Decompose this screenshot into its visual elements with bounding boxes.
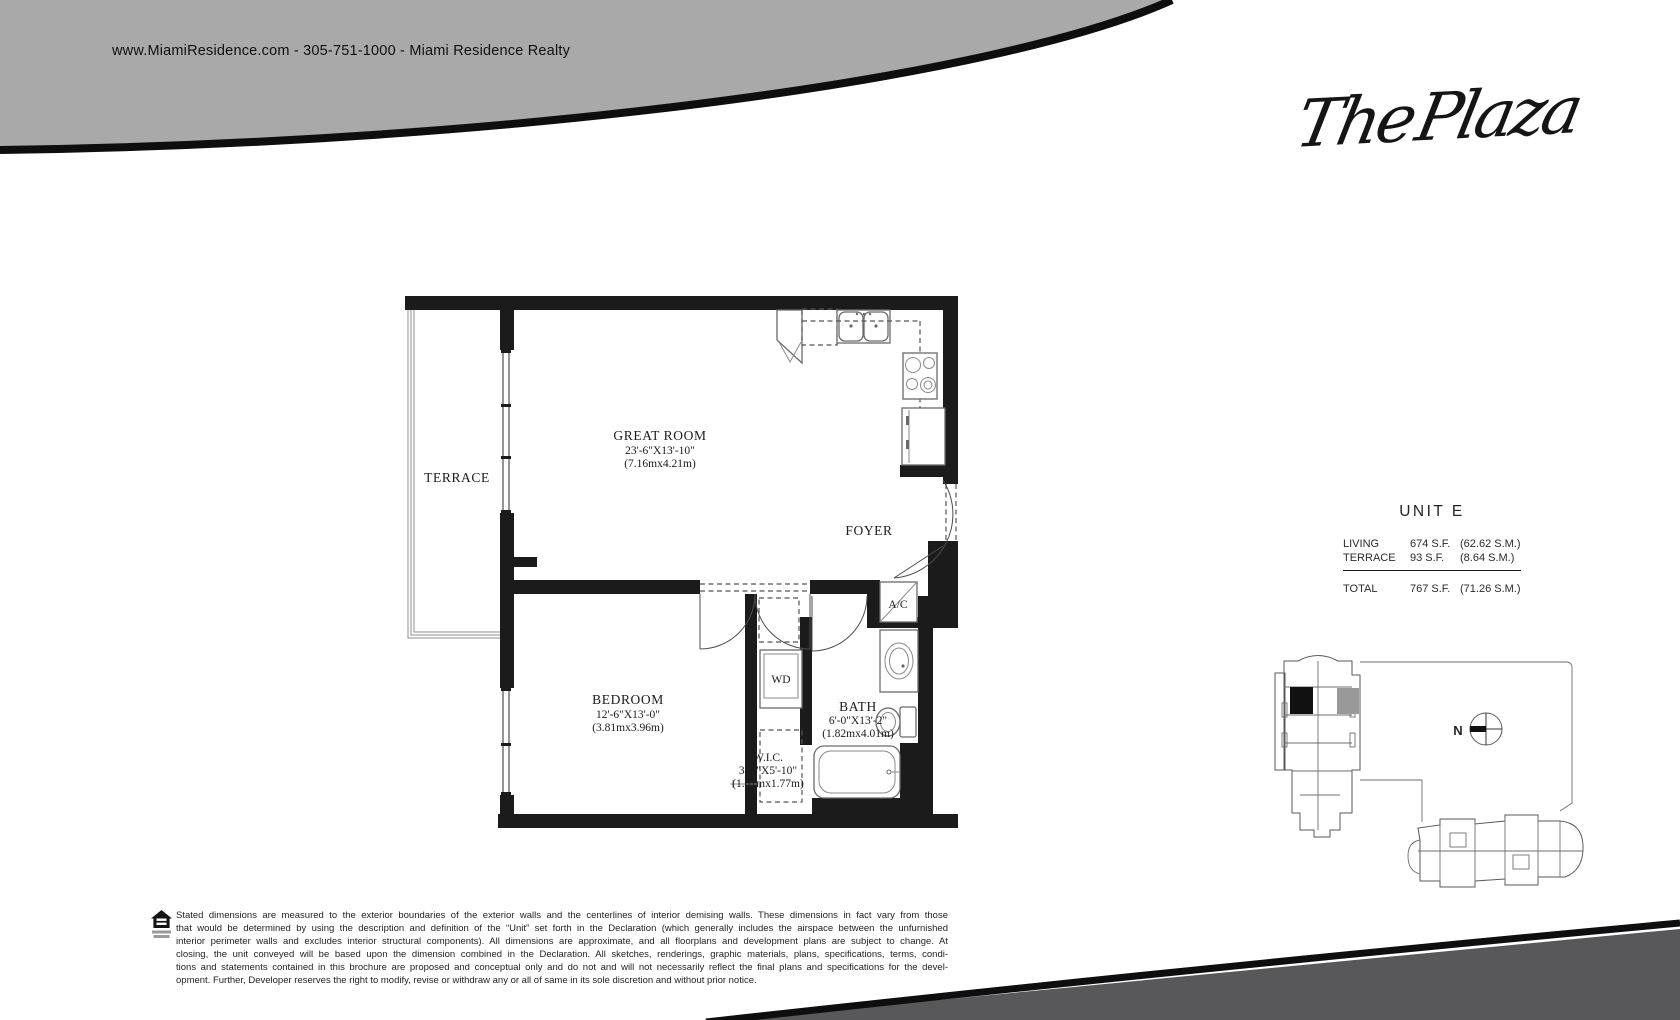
the-plaza-logo: The Plaza: [1275, 70, 1608, 235]
row-label: TERRACE: [1343, 551, 1410, 565]
compass-icon: [1470, 713, 1502, 745]
bedroom-dims: 12'-6"X13'-0": [596, 709, 660, 721]
top-gray-band: [0, 0, 1172, 147]
keyplan-boundary: [1360, 662, 1572, 822]
bedroom-label: BEDROOM: [592, 692, 664, 707]
upper-cabinet-dashed: [802, 309, 837, 345]
great-room-label: GREAT ROOM: [613, 428, 706, 443]
floor-plan: TERRACE GREAT ROOM 23'-6"X13'-10" (7.16m…: [400, 288, 965, 833]
wic-dims: 3'-4"X5'-10": [739, 765, 797, 777]
washer-dryer: [759, 598, 802, 708]
bath-dims: 6'-0"X13'-2": [829, 715, 887, 727]
unit-title: UNIT E: [1343, 503, 1521, 521]
bath-door: [812, 596, 867, 651]
stove-icon: [903, 353, 937, 399]
row-label: LIVING: [1343, 537, 1410, 551]
window-great-room: [501, 350, 511, 513]
wic-label: W.I.C.: [753, 752, 783, 764]
keyplan-tower-south: [1408, 815, 1583, 887]
table-row-living: LIVING 674 S.F. (62.62 S.M.): [1343, 537, 1521, 551]
adjacent-unit-highlight: [1337, 688, 1359, 714]
row-label: TOTAL: [1343, 582, 1410, 596]
unit-e-highlight: [1290, 687, 1313, 714]
row-sf: 767 S.F.: [1410, 582, 1460, 596]
foyer-label: FOYER: [845, 523, 892, 538]
building-keyplan: N: [1270, 645, 1590, 910]
row-sm: (71.26 S.M.): [1460, 582, 1521, 596]
bath-vanity-icon: [880, 630, 918, 692]
row-sm: (62.62 S.M.): [1460, 537, 1521, 551]
window-bedroom: [501, 688, 511, 795]
compass-north-label: N: [1453, 723, 1462, 738]
great-room-dims: 23'-6"X13'-10": [625, 445, 695, 457]
terrace-label: TERRACE: [424, 470, 490, 485]
kitchen: [777, 309, 945, 465]
corner-cabinet-icon: [777, 310, 802, 363]
table-row-terrace: TERRACE 93 S.F. (8.64 S.M.): [1343, 551, 1521, 565]
wd-label: WD: [771, 674, 790, 686]
wic-dims-metric: (1.01mx1.77m): [732, 778, 804, 790]
row-sf: 93 S.F.: [1410, 551, 1460, 565]
bathtub-icon: [814, 746, 900, 798]
bottom-swoosh-graphic: [0, 915, 1680, 1020]
bedroom-dims-metric: (3.81mx3.96m): [592, 722, 664, 734]
ac-label: A/C: [888, 599, 908, 611]
row-sf: 674 S.F.: [1410, 537, 1460, 551]
great-room-dims-metric: (7.16mx4.21m): [624, 458, 696, 470]
keyplan-tower-north: [1275, 656, 1360, 838]
bath-label: BATH: [839, 699, 877, 714]
table-row-total: TOTAL 767 S.F. (71.26 S.M.): [1343, 582, 1521, 596]
table-divider: [1343, 570, 1521, 571]
unit-area-table: LIVING 674 S.F. (62.62 S.M.) TERRACE 93 …: [1343, 537, 1521, 596]
contact-line: www.MiamiResidence.com - 305-751-1000 - …: [112, 43, 570, 59]
refrigerator-icon: [902, 408, 945, 465]
row-sm: (8.64 S.M.): [1460, 551, 1521, 565]
bath-dims-metric: (1.82mx4.01m): [822, 728, 894, 740]
